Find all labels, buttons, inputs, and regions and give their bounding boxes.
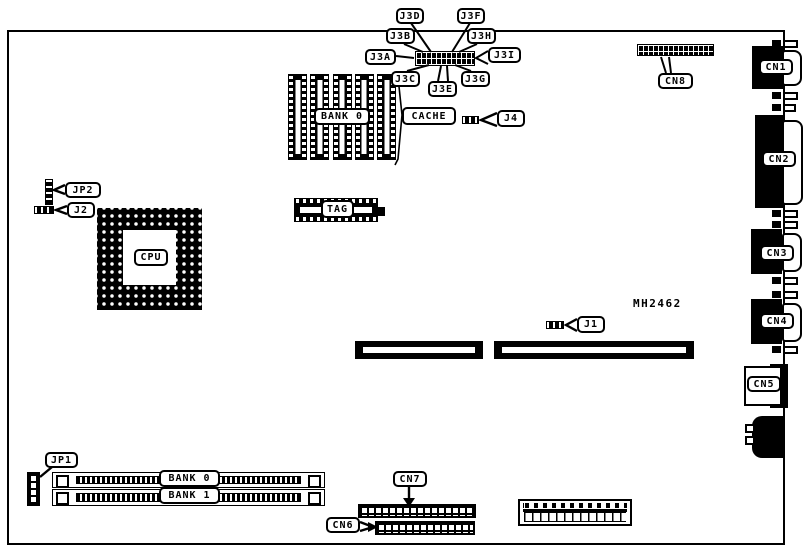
label-j3b: J3B xyxy=(386,28,415,44)
label-jp2: JP2 xyxy=(65,182,101,198)
label-j4: J4 xyxy=(497,110,525,127)
label-cpu: CPU xyxy=(134,249,168,266)
label-cn1: CN1 xyxy=(759,59,793,75)
label-cn4: CN4 xyxy=(760,313,794,329)
label-j3c: J3C xyxy=(391,71,420,87)
label-cn5: CN5 xyxy=(747,376,781,392)
label-j3h: J3H xyxy=(467,28,496,44)
label-memory-bank0: BANK 0 xyxy=(159,470,220,487)
label-j3e: J3E xyxy=(428,81,457,97)
label-cn7: CN7 xyxy=(393,471,427,487)
label-cn2: CN2 xyxy=(762,151,796,167)
label-j3i: J3I xyxy=(488,47,521,63)
label-cn8: CN8 xyxy=(658,73,693,89)
label-j1: J1 xyxy=(577,316,605,333)
label-j3a: J3A xyxy=(365,49,396,65)
motherboard-diagram: J3D J3F J3B J3H J3A J3I J3C J3E J3G BANK… xyxy=(0,0,806,552)
label-cache: CACHE xyxy=(402,107,456,125)
label-cn6: CN6 xyxy=(326,517,360,533)
label-tag: TAG xyxy=(321,200,354,218)
label-cache-bank0: BANK 0 xyxy=(314,108,370,125)
label-cn3: CN3 xyxy=(760,245,794,261)
label-j2: J2 xyxy=(67,202,95,218)
label-j3d: J3D xyxy=(396,8,424,24)
label-j3g: J3G xyxy=(461,71,490,87)
label-j3f: J3F xyxy=(457,8,485,24)
label-jp1: JP1 xyxy=(45,452,78,468)
label-memory-bank1: BANK 1 xyxy=(159,487,220,504)
